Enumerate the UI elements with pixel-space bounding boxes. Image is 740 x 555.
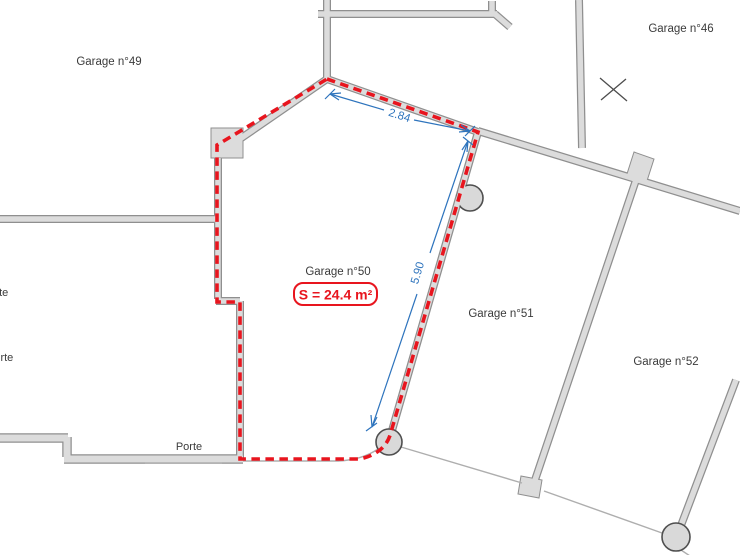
floor-plan-canvas: 2.84 5.90 Garage n°49 Garage n°46 Garage… bbox=[0, 0, 740, 555]
dimension-side-label: 5.90 bbox=[409, 261, 427, 286]
column bbox=[662, 523, 690, 551]
room-label-garage49: Garage n°49 bbox=[76, 56, 141, 68]
room-label-garage51: Garage n°51 bbox=[468, 308, 533, 320]
dimension-lines: 2.84 5.90 bbox=[325, 89, 475, 431]
room-label-garage46: Garage n°46 bbox=[648, 23, 713, 35]
area-badge: S = 24.4 m² bbox=[294, 283, 377, 305]
floor-plan: 2.84 5.90 Garage n°49 Garage n°46 Garage… bbox=[0, 0, 740, 555]
area-badge-text: S = 24.4 m² bbox=[299, 287, 373, 303]
room-label-garage52: Garage n°52 bbox=[633, 356, 698, 368]
door-label-left-lower: Porte bbox=[0, 352, 13, 364]
door-label-bottom: Porte bbox=[176, 441, 202, 453]
cross-mark-icon bbox=[600, 78, 627, 101]
door-line-stub bbox=[681, 550, 690, 555]
door-line-garage52 bbox=[544, 491, 662, 533]
wall-pier bbox=[518, 476, 542, 498]
door-line-garage51 bbox=[401, 447, 522, 483]
door-label-left-upper: Porte bbox=[0, 287, 8, 299]
room-label-garage50: Garage n°50 bbox=[305, 266, 370, 278]
